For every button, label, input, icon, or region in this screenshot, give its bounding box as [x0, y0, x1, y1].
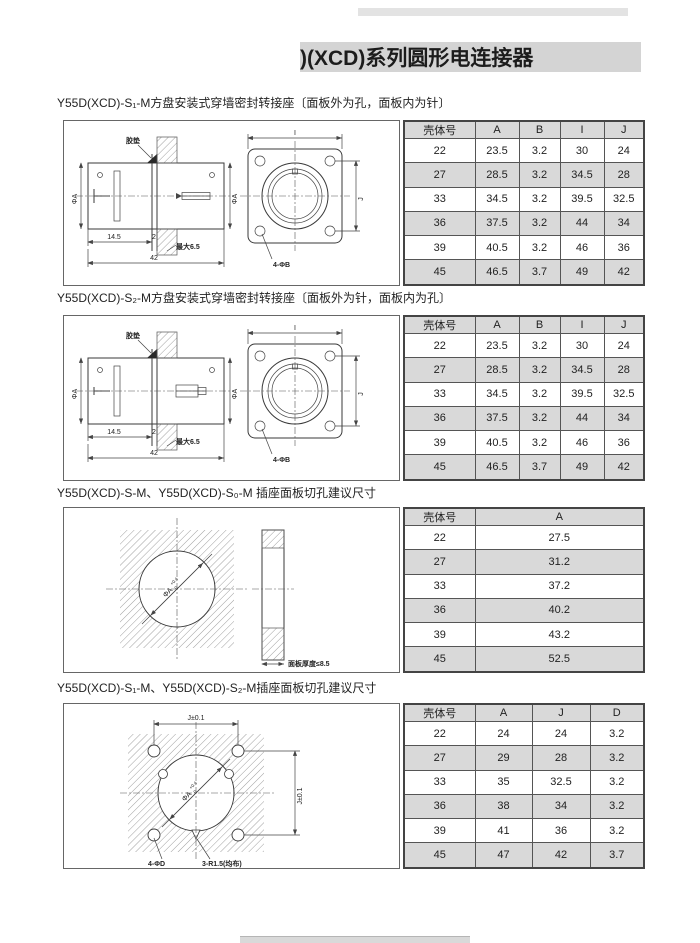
- table-cell: 34: [604, 211, 644, 235]
- table-header-cell: I: [560, 316, 604, 334]
- table-header-cell: J: [532, 704, 590, 722]
- table-row: 2227.5: [404, 526, 644, 550]
- table-cell: 3.2: [519, 236, 560, 260]
- dim-phi-a-right: ΦA: [232, 389, 239, 400]
- dim-phi-a-left: ΦA: [72, 389, 79, 400]
- table-cell: 52.5: [475, 647, 644, 672]
- table-row: 2728.53.234.528: [404, 163, 644, 187]
- table-header-cell: A: [475, 121, 519, 139]
- table-row: 4546.53.74942: [404, 260, 644, 285]
- notch-label: 3-R1.5(均布): [202, 859, 242, 868]
- table-cell: 24: [475, 722, 532, 746]
- dim-14-5: 14.5: [107, 429, 121, 436]
- table-cell: 46.5: [475, 455, 519, 480]
- table-cell: 38: [475, 794, 532, 818]
- table-row: 3334.53.239.532.5: [404, 382, 644, 406]
- table-cell: 3.2: [590, 794, 644, 818]
- table-cell: 24: [604, 334, 644, 358]
- table-cell: 39.5: [560, 187, 604, 211]
- table-cell: 36: [404, 406, 475, 430]
- table-cell: 24: [532, 722, 590, 746]
- table-cell: 3.2: [519, 211, 560, 235]
- table-row: 2729283.2: [404, 746, 644, 770]
- dim-j: J: [358, 392, 365, 396]
- section2-table-wrap: 壳体号ABIJ2223.53.230242728.53.234.5283334.…: [403, 315, 645, 481]
- table-cell: 33: [404, 770, 475, 794]
- bottom-scrollbar[interactable]: [240, 936, 470, 943]
- section2-drawing-box: 胶垫 ΦA ΦA 14.5 2 最大6.5 42: [63, 315, 400, 481]
- section4-dimension-table: 壳体号AJD2224243.22729283.2333532.53.236383…: [403, 703, 645, 869]
- adapter-side-and-front-view-drawing: 胶垫 ΦA ΦA 14.5 2 最大6.5 42: [64, 316, 401, 480]
- table-cell: 33: [404, 574, 475, 598]
- table-row: 3637.53.24434: [404, 406, 644, 430]
- table-cell: 3.2: [519, 406, 560, 430]
- table-header-row: 壳体号A: [404, 508, 644, 526]
- page-title-bar: )(XCD)系列圆形电连接器: [300, 42, 641, 72]
- page-title: )(XCD)系列圆形电连接器: [300, 42, 533, 72]
- holes-label: 4-ΦD: [148, 861, 165, 868]
- table-cell: 27: [404, 163, 475, 187]
- table-cell: 42: [532, 843, 590, 868]
- table-header-cell: A: [475, 508, 644, 526]
- table-cell: 44: [560, 406, 604, 430]
- table-header-row: 壳体号ABIJ: [404, 316, 644, 334]
- table-cell: 33: [404, 382, 475, 406]
- section1-drawing-box: 胶垫 ΦA ΦA 14.5 2 最大6.5: [63, 120, 400, 286]
- table-cell: 27: [404, 358, 475, 382]
- dim-j: J: [358, 197, 365, 201]
- table-cell: 3.2: [519, 139, 560, 163]
- table-cell: 36: [604, 236, 644, 260]
- table-cell: 37.5: [475, 211, 519, 235]
- table-cell: 46: [560, 236, 604, 260]
- table-cell: 30: [560, 334, 604, 358]
- table-cell: 47: [475, 843, 532, 868]
- table-cell: 34: [604, 406, 644, 430]
- table-header-cell: A: [475, 316, 519, 334]
- table-cell: 22: [404, 526, 475, 550]
- table-header-row: 壳体号ABIJ: [404, 121, 644, 139]
- table-cell: 42: [604, 455, 644, 480]
- table-cell: 45: [404, 455, 475, 480]
- dim-j-top: J±0.1: [187, 715, 204, 722]
- section3-content: ΦA +0.4 0 面板厚度≤8.5 壳体号A2227.52731.23337.…: [63, 507, 645, 673]
- table-cell: 28: [604, 163, 644, 187]
- table-row: 4552.5: [404, 647, 644, 672]
- section3-drawing-box: ΦA +0.4 0 面板厚度≤8.5: [63, 507, 400, 673]
- section3-title: Y55D(XCD)-S-M、Y55D(XCD)-S₀-M 插座面板切孔建议尺寸: [57, 484, 376, 501]
- table-row: 3940.53.24636: [404, 236, 644, 260]
- table-cell: 27.5: [475, 526, 644, 550]
- datasheet-page: )(XCD)系列圆形电连接器 Y55D(XCD)-S₁-M方盘安装式穿墙密封转接…: [0, 0, 700, 943]
- table-cell: 45: [404, 260, 475, 285]
- table-cell: 43.2: [475, 623, 644, 647]
- table-row: 3638343.2: [404, 794, 644, 818]
- section2-content: 胶垫 ΦA ΦA 14.5 2 最大6.5 42: [63, 315, 645, 481]
- table-cell: 3.2: [590, 770, 644, 794]
- table-cell: 49: [560, 260, 604, 285]
- dim-i: I: [294, 325, 296, 332]
- dim-42: 42: [150, 255, 158, 262]
- section2-title: Y55D(XCD)-S₂-M方盘安装式穿墙密封转接座〔面板外为针，面板内为孔〕: [57, 289, 451, 306]
- table-cell: 27: [404, 550, 475, 574]
- table-cell: 28: [604, 358, 644, 382]
- table-cell: 36: [404, 211, 475, 235]
- table-cell: 28.5: [475, 358, 519, 382]
- table-cell: 36: [404, 794, 475, 818]
- table-cell: 28: [532, 746, 590, 770]
- table-cell: 31.2: [475, 550, 644, 574]
- table-cell: 34.5: [475, 187, 519, 211]
- table-header-cell: B: [519, 316, 560, 334]
- table-header-cell: 壳体号: [404, 508, 475, 526]
- table-header-cell: I: [560, 121, 604, 139]
- dim-phi-a-left: ΦA: [72, 194, 79, 205]
- table-row: 4547423.7: [404, 843, 644, 868]
- table-header-cell: 壳体号: [404, 121, 475, 139]
- table-row: 2224243.2: [404, 722, 644, 746]
- dim-i: I: [294, 130, 296, 137]
- dim-j-right: J±0.1: [297, 787, 304, 804]
- table-row: 4546.53.74942: [404, 455, 644, 480]
- table-cell: 3.2: [519, 163, 560, 187]
- table-cell: 33: [404, 187, 475, 211]
- table-header-cell: A: [475, 704, 532, 722]
- table-cell: 39: [404, 623, 475, 647]
- table-cell: 46: [560, 431, 604, 455]
- table-cell: 3.2: [590, 722, 644, 746]
- section4-title: Y55D(XCD)-S₁-M、Y55D(XCD)-S₂-M插座面板切孔建议尺寸: [57, 679, 376, 696]
- table-cell: 40.5: [475, 431, 519, 455]
- section3-table-wrap: 壳体号A2227.52731.23337.23640.23943.24552.5: [403, 507, 645, 673]
- dim-14-5: 14.5: [107, 234, 121, 241]
- holes-label: 4-ΦB: [273, 457, 290, 464]
- table-cell: 3.7: [590, 843, 644, 868]
- section4-table-wrap: 壳体号AJD2224243.22729283.2333532.53.236383…: [403, 703, 645, 869]
- table-header-cell: D: [590, 704, 644, 722]
- table-cell: 23.5: [475, 334, 519, 358]
- section1-dimension-table: 壳体号ABIJ2223.53.230242728.53.234.5283334.…: [403, 120, 645, 286]
- table-cell: 3.2: [519, 431, 560, 455]
- table-cell: 3.2: [519, 334, 560, 358]
- table-cell: 39.5: [560, 382, 604, 406]
- table-header-cell: J: [604, 316, 644, 334]
- table-cell: 42: [604, 260, 644, 285]
- table-header-cell: J: [604, 121, 644, 139]
- table-cell: 41: [475, 819, 532, 843]
- table-row: 3940.53.24636: [404, 431, 644, 455]
- table-row: 3943.2: [404, 623, 644, 647]
- table-cell: 3.2: [590, 746, 644, 770]
- table-row: 3334.53.239.532.5: [404, 187, 644, 211]
- section4-drawing-box: ΦA +0.4 0 J±0.1 J±0.1 4-ΦD 3-R1.5(均布): [63, 703, 400, 869]
- table-row: 2223.53.23024: [404, 139, 644, 163]
- table-cell: 45: [404, 647, 475, 672]
- top-gray-strip: [358, 8, 628, 16]
- dim-max-6-5: 最大6.5: [176, 242, 200, 251]
- table-cell: 28.5: [475, 163, 519, 187]
- section1-content: 胶垫 ΦA ΦA 14.5 2 最大6.5: [63, 120, 645, 286]
- table-cell: 3.2: [519, 187, 560, 211]
- table-cell: 3.2: [590, 819, 644, 843]
- gasket-label: 胶垫: [126, 331, 140, 340]
- table-cell: 39: [404, 819, 475, 843]
- table-header-cell: 壳体号: [404, 316, 475, 334]
- table-cell: 3.7: [519, 260, 560, 285]
- table-cell: 24: [604, 139, 644, 163]
- table-header-cell: B: [519, 121, 560, 139]
- table-cell: 34.5: [475, 382, 519, 406]
- table-cell: 3.7: [519, 455, 560, 480]
- table-cell: 34: [532, 794, 590, 818]
- panel-cutout-drawing: ΦA +0.4 0 面板厚度≤8.5: [64, 508, 401, 672]
- table-cell: 22: [404, 722, 475, 746]
- section1-table-wrap: 壳体号ABIJ2223.53.230242728.53.234.5283334.…: [403, 120, 645, 286]
- table-row: 2728.53.234.528: [404, 358, 644, 382]
- dim-42: 42: [150, 450, 158, 457]
- table-cell: 46.5: [475, 260, 519, 285]
- table-cell: 40.5: [475, 236, 519, 260]
- table-cell: 30: [560, 139, 604, 163]
- table-row: 3637.53.24434: [404, 211, 644, 235]
- table-cell: 22: [404, 139, 475, 163]
- table-cell: 22: [404, 334, 475, 358]
- panel-thickness-note: 面板厚度≤8.5: [288, 659, 330, 668]
- dim-phi-a-right: ΦA: [232, 194, 239, 205]
- table-cell: 39: [404, 431, 475, 455]
- table-cell: 34.5: [560, 163, 604, 187]
- table-cell: 34.5: [560, 358, 604, 382]
- table-header-cell: 壳体号: [404, 704, 475, 722]
- table-row: 2731.2: [404, 550, 644, 574]
- table-cell: 44: [560, 211, 604, 235]
- table-cell: 32.5: [604, 382, 644, 406]
- section4-content: ΦA +0.4 0 J±0.1 J±0.1 4-ΦD 3-R1.5(均布): [63, 703, 645, 869]
- table-cell: 32.5: [532, 770, 590, 794]
- panel-cutout-with-holes-drawing: ΦA +0.4 0 J±0.1 J±0.1 4-ΦD 3-R1.5(均布): [64, 704, 401, 868]
- table-cell: 37.2: [475, 574, 644, 598]
- table-cell: 27: [404, 746, 475, 770]
- dim-max-6-5: 最大6.5: [176, 437, 200, 446]
- dim-2: 2: [152, 234, 156, 241]
- dim-2: 2: [152, 429, 156, 436]
- table-row: 2223.53.23024: [404, 334, 644, 358]
- table-cell: 36: [532, 819, 590, 843]
- table-cell: 29: [475, 746, 532, 770]
- table-row: 3941363.2: [404, 819, 644, 843]
- section2-dimension-table: 壳体号ABIJ2223.53.230242728.53.234.5283334.…: [403, 315, 645, 481]
- table-cell: 23.5: [475, 139, 519, 163]
- table-cell: 49: [560, 455, 604, 480]
- section1-title: Y55D(XCD)-S₁-M方盘安装式穿墙密封转接座〔面板外为孔，面板内为针〕: [57, 94, 450, 111]
- gasket-label: 胶垫: [126, 136, 140, 145]
- holes-label: 4-ΦB: [273, 262, 290, 269]
- table-header-row: 壳体号AJD: [404, 704, 644, 722]
- table-cell: 45: [404, 843, 475, 868]
- table-row: 3337.2: [404, 574, 644, 598]
- table-cell: 36: [404, 598, 475, 622]
- table-row: 333532.53.2: [404, 770, 644, 794]
- table-cell: 32.5: [604, 187, 644, 211]
- table-cell: 39: [404, 236, 475, 260]
- table-cell: 36: [604, 431, 644, 455]
- table-cell: 40.2: [475, 598, 644, 622]
- adapter-side-and-front-view-drawing: 胶垫 ΦA ΦA 14.5 2 最大6.5: [64, 121, 401, 285]
- table-cell: 35: [475, 770, 532, 794]
- table-cell: 3.2: [519, 358, 560, 382]
- table-cell: 3.2: [519, 382, 560, 406]
- table-row: 3640.2: [404, 598, 644, 622]
- section3-dimension-table: 壳体号A2227.52731.23337.23640.23943.24552.5: [403, 507, 645, 673]
- table-cell: 37.5: [475, 406, 519, 430]
